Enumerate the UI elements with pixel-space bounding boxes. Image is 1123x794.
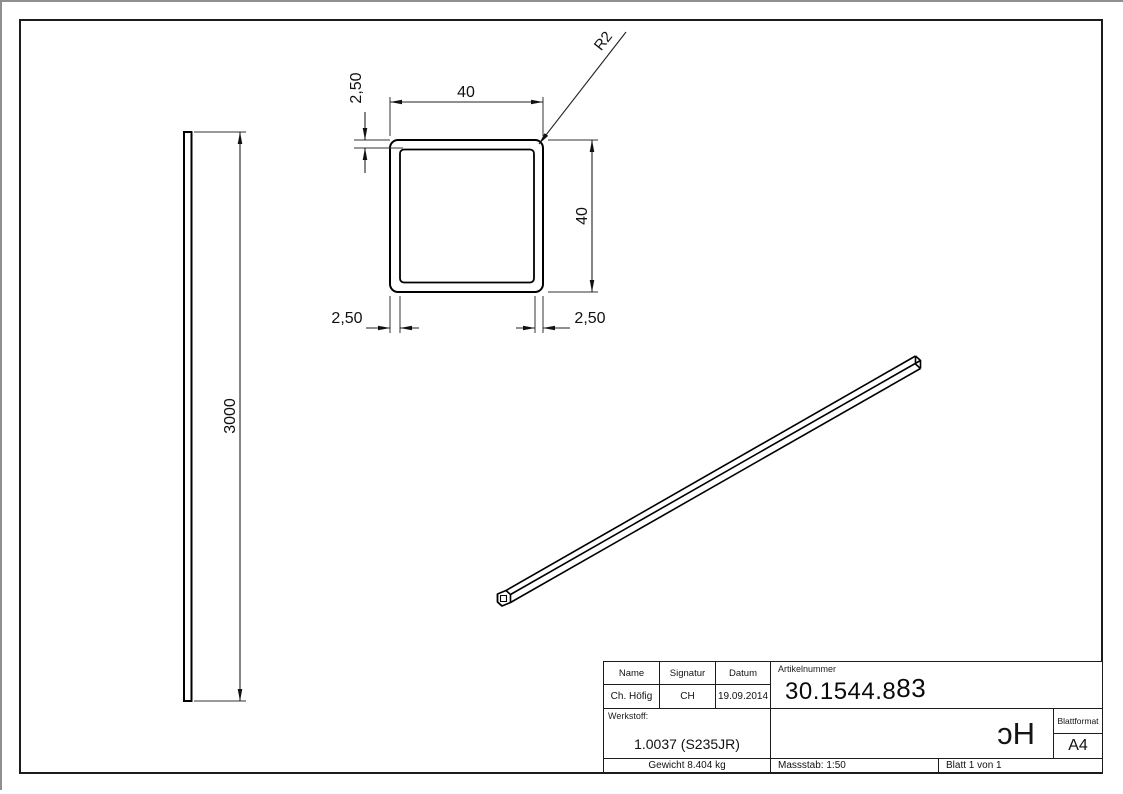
cad-drawing-page: 3000 40 40 2,50 R2: [0, 0, 1123, 794]
tb-header-datum: Datum: [715, 661, 771, 685]
dim-width-label: 40: [457, 84, 475, 101]
tb-header-name: Name: [603, 661, 660, 685]
tb-blattformat-value: A4: [1053, 733, 1103, 759]
tb-werkstoff-cell: Werkstoff: 1.0037 (S235JR): [603, 708, 771, 759]
tb-gewicht-cell: Gewicht 8.404 kg: [603, 758, 771, 773]
tb-logo-cell: ɔH: [770, 708, 1054, 759]
tb-header-signatur: Signatur: [659, 661, 716, 685]
tb-value-signatur: CH: [659, 684, 716, 709]
dim-wall-left-label: 2,50: [331, 310, 362, 327]
dim-length-label: 3000: [222, 398, 239, 434]
isometric-view: [498, 356, 921, 606]
dim-wall-top-label: 2,50: [348, 72, 365, 103]
tb-blatt-cell: Blatt 1 von 1: [938, 758, 1103, 773]
article-number-tail: 83: [896, 673, 926, 703]
tb-value-name: Ch. Höfig: [603, 684, 660, 709]
article-number: 30.1544.883: [785, 675, 926, 706]
tb-artikelnummer-cell: Artikelnummer 30.1544.883: [770, 661, 1103, 709]
material-value: 1.0037 (S235JR): [604, 736, 770, 752]
tb-blattformat-label: Blattformat: [1053, 708, 1103, 734]
dim-height-label: 40: [574, 207, 591, 225]
title-block: Name Signatur Datum Ch. Höfig CH 19.09.2…: [603, 661, 1103, 773]
side-view: 3000: [184, 132, 246, 701]
cross-section-view: 40 40 2,50 R2 2,50: [331, 28, 626, 333]
tb-werkstoff-label: Werkstoff:: [608, 711, 648, 721]
tb-value-datum: 19.09.2014: [715, 684, 771, 709]
company-logo: ɔH: [997, 712, 1035, 756]
tb-artikelnummer-label: Artikelnummer: [778, 664, 836, 674]
dim-wall-right-label: 2,50: [574, 310, 605, 327]
tb-massstab-cell: Massstab: 1:50: [770, 758, 939, 773]
article-number-main: 30.1544.8: [785, 678, 896, 705]
